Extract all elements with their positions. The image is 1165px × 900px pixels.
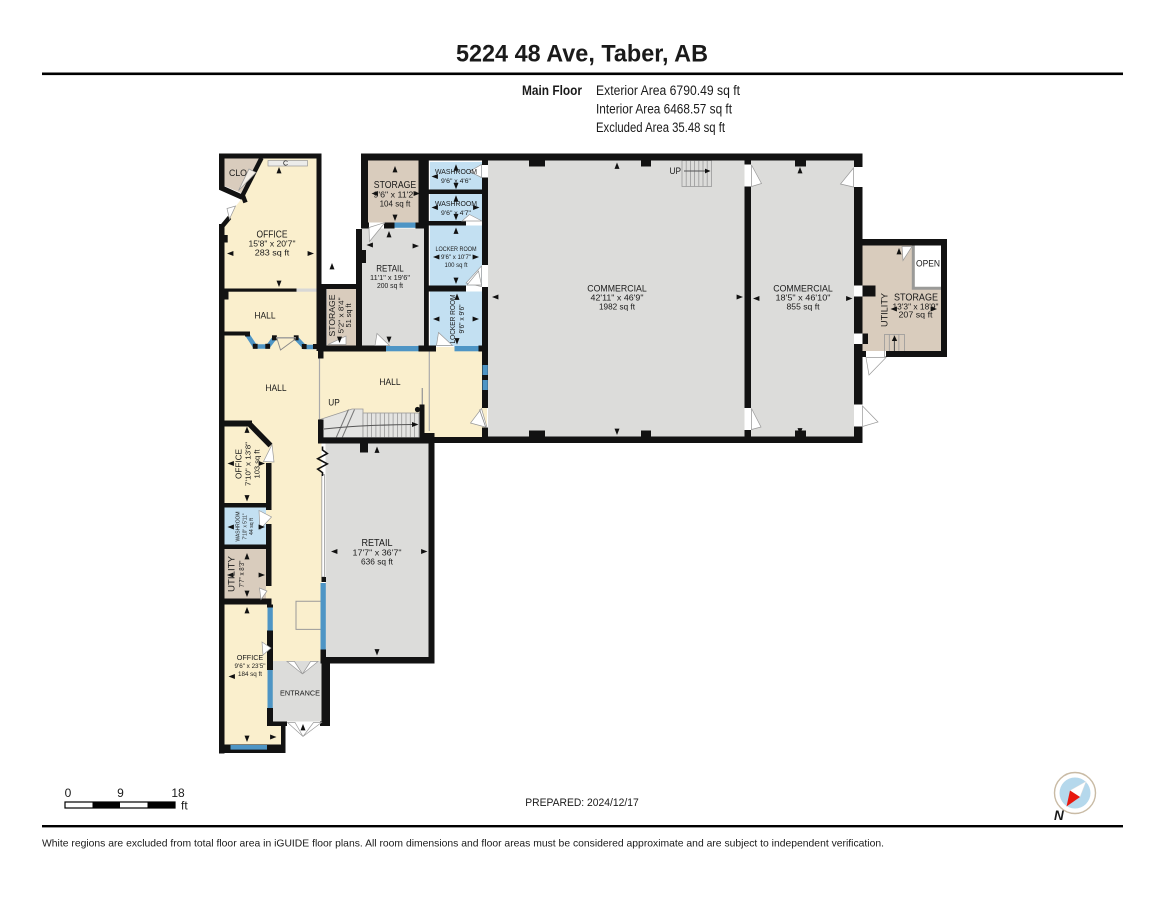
svg-text:OPEN: OPEN bbox=[916, 259, 940, 270]
svg-text:51 sq ft: 51 sq ft bbox=[344, 303, 353, 328]
svg-text:0: 0 bbox=[65, 786, 72, 800]
svg-text:103 sq ft: 103 sq ft bbox=[255, 449, 262, 478]
svg-text:UP: UP bbox=[328, 398, 340, 409]
svg-text:9'6" x 9'6": 9'6" x 9'6" bbox=[459, 304, 466, 333]
svg-text:184 sq ft: 184 sq ft bbox=[238, 671, 262, 678]
svg-text:LOCKER ROOM: LOCKER ROOM bbox=[448, 295, 457, 344]
svg-text:Excluded Area 35.48 sq ft: Excluded Area 35.48 sq ft bbox=[596, 120, 725, 135]
svg-text:WASHROOM: WASHROOM bbox=[435, 201, 477, 208]
svg-text:CLO: CLO bbox=[229, 168, 247, 179]
svg-text:UTILITY: UTILITY bbox=[227, 555, 238, 592]
svg-text:WASHROOM: WASHROOM bbox=[236, 511, 242, 541]
svg-text:UTILITY: UTILITY bbox=[880, 292, 891, 327]
svg-text:STORAGE: STORAGE bbox=[327, 294, 337, 336]
svg-text:Interior Area 6468.57 sq ft: Interior Area 6468.57 sq ft bbox=[596, 102, 732, 117]
svg-text:207 sq ft: 207 sq ft bbox=[899, 310, 934, 320]
svg-text:RETAIL: RETAIL bbox=[376, 264, 404, 274]
svg-text:5224 48 Ave, Taber, AB: 5224 48 Ave, Taber, AB bbox=[456, 41, 708, 68]
svg-text:ft: ft bbox=[181, 799, 188, 813]
svg-text:White regions are excluded fro: White regions are excluded from total fl… bbox=[42, 838, 884, 850]
svg-text:OFFICE: OFFICE bbox=[234, 449, 244, 479]
svg-text:9'6" x 23'5": 9'6" x 23'5" bbox=[235, 663, 267, 670]
svg-text:7'7" x 8'3": 7'7" x 8'3" bbox=[239, 560, 246, 587]
svg-text:HALL: HALL bbox=[379, 377, 400, 388]
svg-text:9: 9 bbox=[117, 786, 124, 800]
svg-text:HALL: HALL bbox=[265, 383, 286, 394]
svg-text:9'6" x 4'7": 9'6" x 4'7" bbox=[441, 210, 472, 217]
svg-text:PREPARED: 2024/12/17: PREPARED: 2024/12/17 bbox=[525, 797, 639, 809]
svg-text:Main Floor: Main Floor bbox=[522, 83, 583, 98]
svg-text:44 sq ft: 44 sq ft bbox=[249, 517, 255, 535]
svg-text:WASHROOM: WASHROOM bbox=[435, 169, 477, 176]
svg-text:100 sq ft: 100 sq ft bbox=[445, 263, 468, 269]
svg-text:9'6" x 10'7": 9'6" x 10'7" bbox=[441, 255, 471, 261]
svg-text:C: C bbox=[283, 161, 288, 168]
svg-text:ENTRANCE: ENTRANCE bbox=[280, 689, 320, 698]
svg-text:283 sq ft: 283 sq ft bbox=[255, 248, 290, 258]
svg-text:104 sq ft: 104 sq ft bbox=[380, 199, 411, 209]
svg-text:7'10" x 5'11": 7'10" x 5'11" bbox=[243, 513, 249, 539]
svg-text:200 sq ft: 200 sq ft bbox=[377, 281, 404, 290]
svg-text:UP: UP bbox=[670, 166, 682, 177]
svg-text:OFFICE: OFFICE bbox=[237, 653, 264, 662]
svg-text:N: N bbox=[1054, 808, 1064, 823]
svg-text:HALL: HALL bbox=[254, 311, 275, 322]
svg-text:RETAIL: RETAIL bbox=[362, 538, 393, 549]
svg-text:855 sq ft: 855 sq ft bbox=[787, 302, 821, 312]
svg-text:17'7" x 36'7": 17'7" x 36'7" bbox=[353, 549, 402, 558]
svg-text:7'10" x 13'8": 7'10" x 13'8" bbox=[246, 441, 253, 486]
svg-text:LOCKER ROOM: LOCKER ROOM bbox=[436, 246, 477, 253]
svg-text:Exterior Area 6790.49 sq ft: Exterior Area 6790.49 sq ft bbox=[596, 83, 740, 98]
svg-text:9'6" x 4'6": 9'6" x 4'6" bbox=[441, 178, 472, 185]
svg-text:1982 sq ft: 1982 sq ft bbox=[599, 302, 636, 312]
svg-text:636 sq ft: 636 sq ft bbox=[361, 558, 394, 567]
